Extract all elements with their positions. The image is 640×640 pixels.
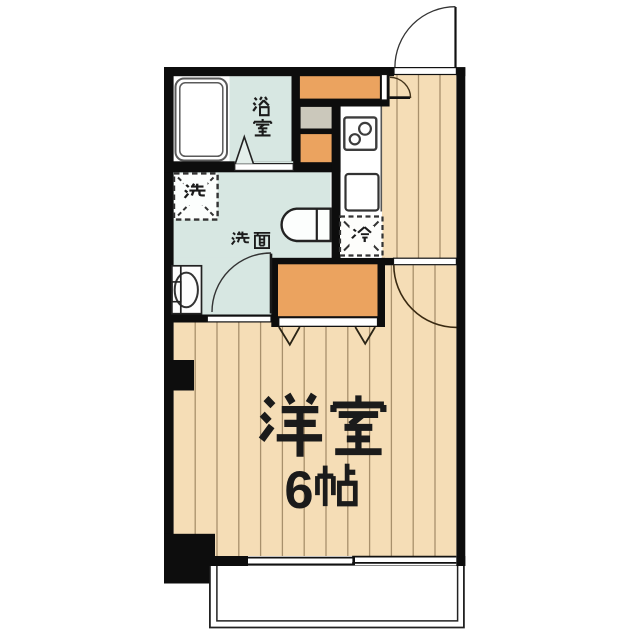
svg-text:6: 6	[284, 461, 313, 520]
